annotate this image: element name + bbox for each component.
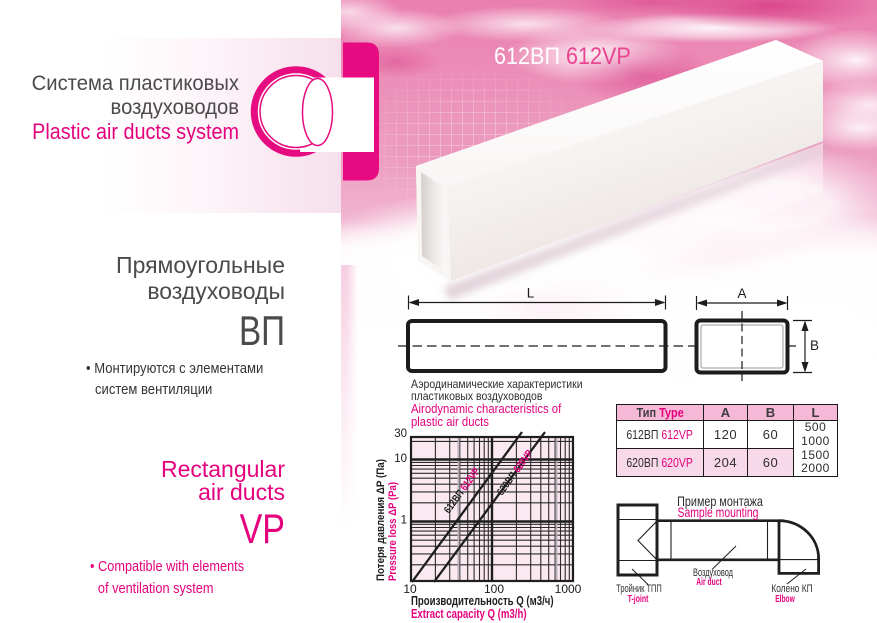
svg-text:1000: 1000 [555,582,582,596]
svg-text:Pressure loss ΔP (Pa): Pressure loss ΔP (Pa) [387,482,399,581]
svg-text:1: 1 [401,515,407,527]
svg-text:B: B [810,338,819,353]
svg-text:A: A [737,286,746,301]
svg-text:Потеря давления ΔP (Па): Потеря давления ΔP (Па) [375,459,387,581]
svg-text:10: 10 [394,453,407,465]
svg-text:L: L [527,286,535,301]
svg-text:30: 30 [394,428,407,440]
